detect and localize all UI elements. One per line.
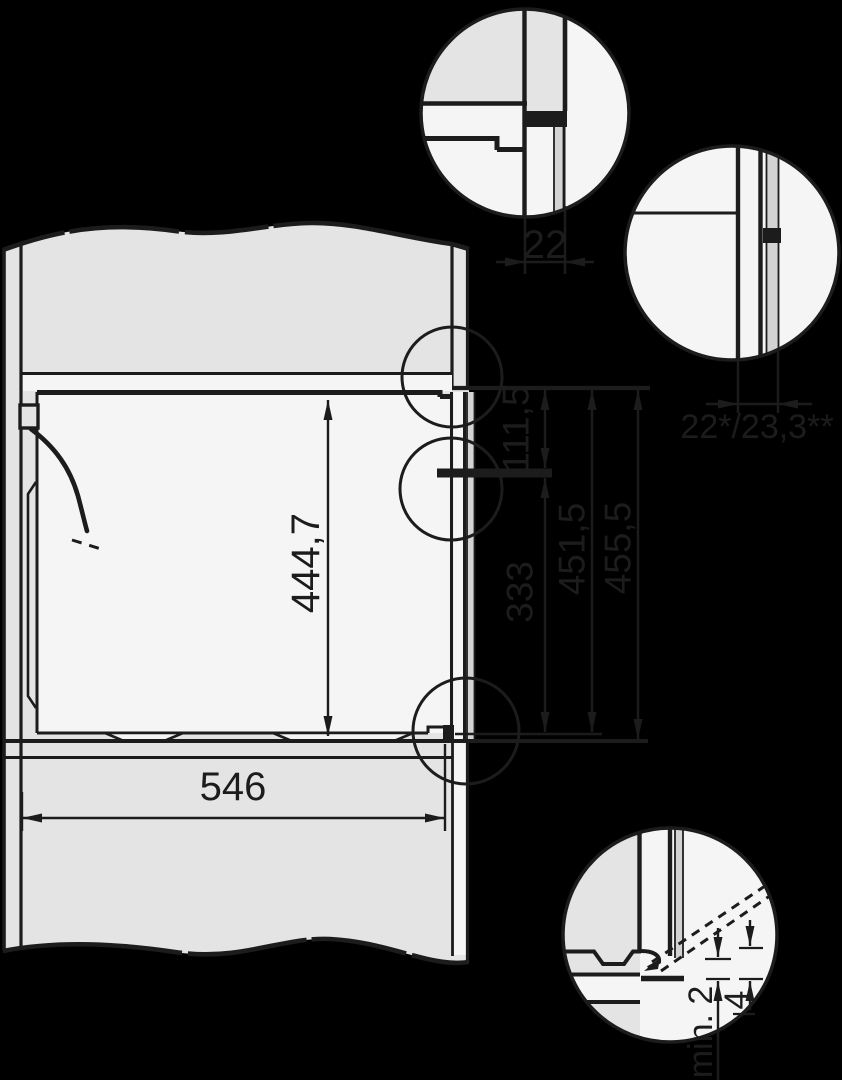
detail-top-slot — [526, 111, 567, 127]
installation-diagram: 444,7 111,5 333 451,5 455,5 546 — [0, 0, 842, 1080]
detail-top-wall: 22 — [415, 5, 629, 274]
detail-front-trim-joint-gap — [763, 228, 781, 243]
detail-bottom-plinth-gray — [560, 1004, 640, 1049]
dim-lower-recess-label: 333 — [500, 561, 541, 623]
dim-22-label: 22 — [523, 223, 568, 267]
dim-upper-recess-label: 111,5 — [496, 385, 537, 472]
detail-bottom-trim — [676, 825, 682, 958]
appliance-niche — [37, 394, 452, 733]
detail-top-wall-upper — [527, 5, 564, 111]
detail-top-trim-lower — [555, 127, 562, 222]
dim-front-label: 22*/23,3** — [680, 408, 833, 446]
dim-total2-label: 455,5 — [598, 502, 639, 595]
dim-total1-label: 451,5 — [552, 503, 593, 596]
top-panel-gap — [23, 375, 452, 391]
detail-bottom-edge: min. 2 4 — [560, 825, 777, 1080]
dim-niche-height-label: 444,7 — [284, 513, 328, 613]
mains-connection-box — [20, 405, 38, 428]
installation-diagram-page: 444,7 111,5 333 451,5 455,5 546 — [0, 0, 842, 1080]
detail-front-trim — [768, 140, 779, 366]
dim-min2-label: min. 2 — [682, 986, 720, 1079]
dim-4-label: 4 — [718, 991, 756, 1010]
front-wall-strip — [454, 392, 464, 740]
right-wall-bottom-strip — [454, 743, 466, 955]
detail-front-wall: 22*/23,3** — [620, 140, 839, 446]
detail-top-cabinet-gray — [415, 5, 525, 103]
dim-niche-width-label: 546 — [200, 765, 267, 809]
